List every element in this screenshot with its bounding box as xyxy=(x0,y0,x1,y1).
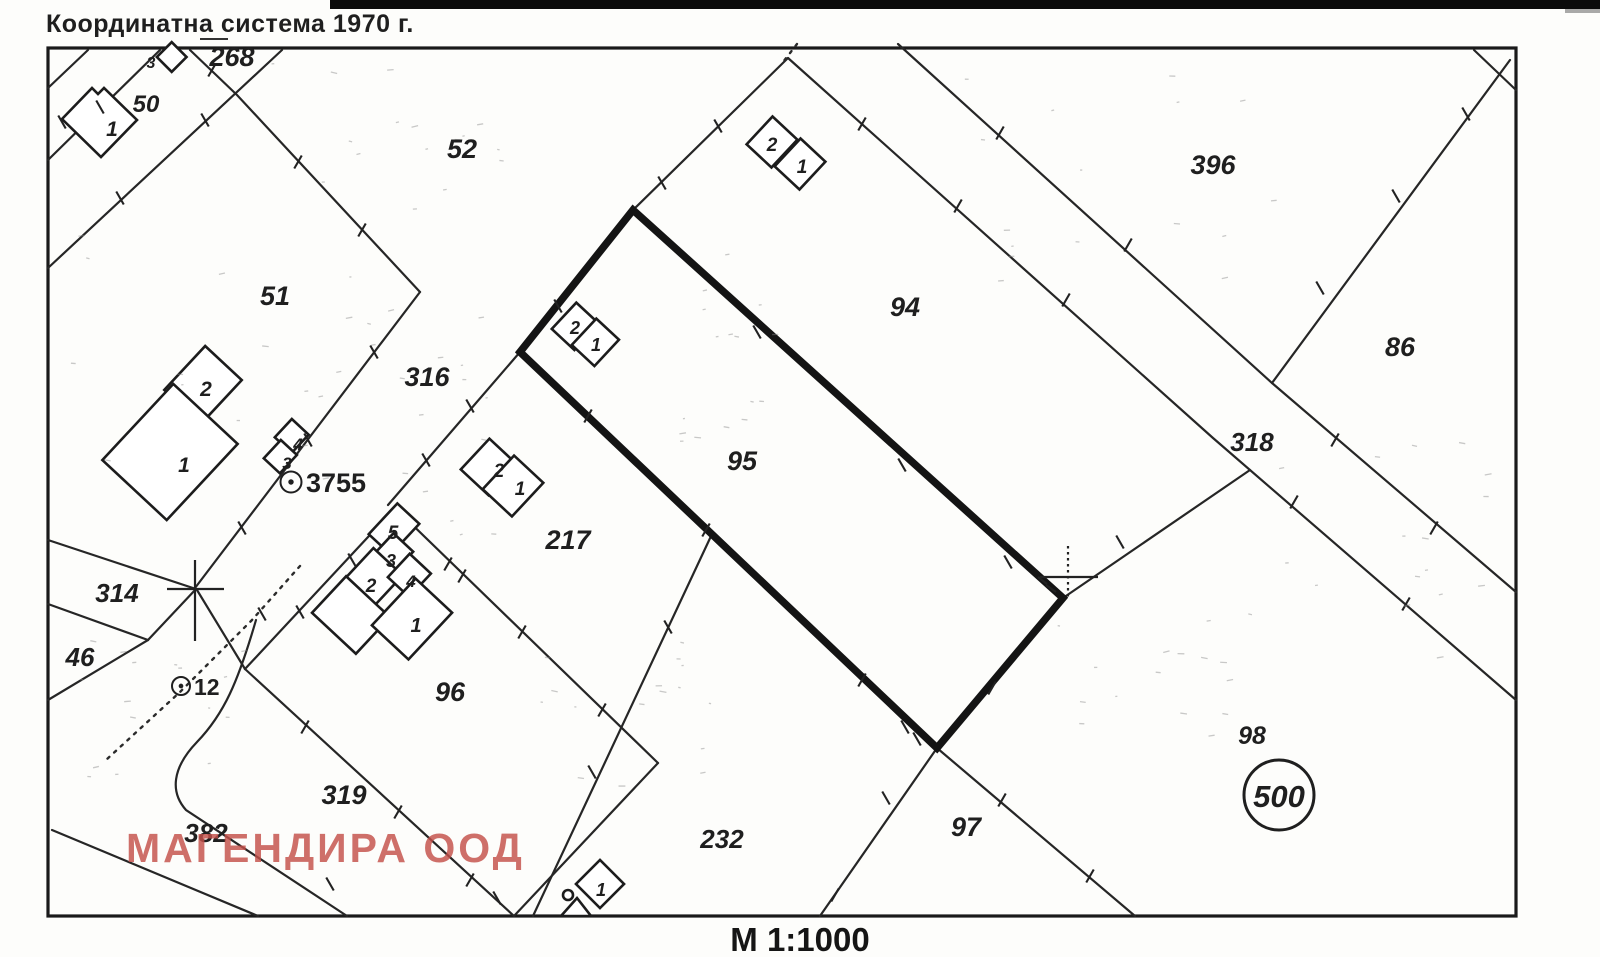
building-label: 1 xyxy=(797,157,808,178)
speckle xyxy=(1248,614,1252,615)
speckle xyxy=(425,149,428,150)
parcel-label: 95 xyxy=(727,446,758,476)
parcel-label: 396 xyxy=(1190,150,1236,180)
speckle xyxy=(1375,457,1380,458)
speckle xyxy=(1439,594,1443,595)
speckle xyxy=(660,691,667,692)
building-label: 1 xyxy=(106,118,118,141)
parcel-label: 268 xyxy=(208,42,254,72)
tick-mark xyxy=(1116,536,1124,549)
speckle xyxy=(700,772,705,773)
speckle xyxy=(1415,576,1420,577)
speckle xyxy=(742,419,748,420)
parcel-label: 316 xyxy=(404,362,450,392)
speckle xyxy=(1080,702,1086,703)
survey-point-label: 12 xyxy=(194,674,220,700)
speckle xyxy=(694,437,701,438)
survey-cross-east xyxy=(1038,546,1098,600)
parcel-label: 96 xyxy=(435,677,466,707)
speckle xyxy=(1437,657,1444,658)
building-label: 2 xyxy=(365,576,377,597)
speckle xyxy=(93,766,99,767)
speckle xyxy=(371,345,375,346)
speckle xyxy=(1177,102,1180,103)
speckle xyxy=(349,141,352,142)
speckle xyxy=(387,70,394,71)
tick-mark xyxy=(1316,282,1324,295)
parcel-label: 50 xyxy=(133,91,160,118)
speckle xyxy=(679,433,686,434)
speckle xyxy=(388,310,394,311)
speckle xyxy=(78,235,85,236)
speckle xyxy=(734,336,739,337)
speckle xyxy=(1222,277,1228,278)
speckle xyxy=(728,334,732,335)
tick-mark xyxy=(831,889,839,902)
speckle xyxy=(578,778,584,779)
speckle xyxy=(1156,672,1161,673)
area-badge-label: 500 xyxy=(1253,779,1305,814)
parcel-label: 86 xyxy=(1385,332,1416,362)
survey-point-dot xyxy=(179,684,184,689)
speckle xyxy=(1227,679,1233,680)
speckle xyxy=(545,657,550,658)
parcel-95-bold-outline xyxy=(520,210,1063,748)
speckle xyxy=(86,258,89,259)
building-label: 2 xyxy=(493,461,505,482)
speckle xyxy=(639,704,644,705)
speckle xyxy=(262,346,269,347)
parcel-label: 217 xyxy=(544,525,592,555)
speckle xyxy=(1478,585,1485,586)
speckle xyxy=(1459,443,1465,444)
map-canvas: Координатна система 1970 г. xyxy=(0,0,1600,957)
building-label: 3 xyxy=(147,55,156,72)
survey-point-dot xyxy=(288,479,293,484)
speckle xyxy=(725,254,729,255)
building-label: 3 xyxy=(282,454,292,473)
speckle xyxy=(367,323,371,324)
parcel-label: 97 xyxy=(951,812,983,842)
speckle xyxy=(356,153,360,154)
frame-corner-cut-tr xyxy=(1474,50,1516,90)
survey-point-label: 3755 xyxy=(306,468,366,498)
building-label: 3 xyxy=(386,551,396,571)
parcel-label: 98 xyxy=(1238,722,1266,750)
tick-mark xyxy=(588,766,596,779)
speckle xyxy=(1279,468,1284,469)
parcel-label: 94 xyxy=(890,292,920,322)
building-label: 2 xyxy=(569,318,580,338)
tick-mark xyxy=(326,878,334,891)
parcel-label: 232 xyxy=(699,824,744,854)
tick-mark xyxy=(898,459,906,472)
speckle xyxy=(130,717,136,718)
building-50 xyxy=(62,88,137,157)
parcel-label: 319 xyxy=(321,780,366,810)
speckle xyxy=(319,396,324,397)
scan-smudge xyxy=(1565,9,1600,13)
tick-mark xyxy=(1062,294,1070,307)
speckle xyxy=(680,642,684,643)
speckle xyxy=(479,317,484,318)
area-500-badge: 500 xyxy=(1244,760,1314,830)
frame-corner-cut-tl xyxy=(48,50,88,88)
parcel-label: 318 xyxy=(1230,427,1274,457)
speckle xyxy=(346,317,352,318)
tick-mark xyxy=(1004,556,1012,569)
speckle xyxy=(1240,100,1245,101)
parcel-number-labels: 2685052513163969486318952173144696319382… xyxy=(65,42,1416,854)
tick-mark xyxy=(882,792,890,805)
building-label: 1 xyxy=(591,335,601,355)
speckle xyxy=(224,677,227,678)
speckle xyxy=(1222,714,1228,715)
parcel-label: 46 xyxy=(65,642,95,672)
tick-mark xyxy=(258,608,266,621)
scale-label: М 1:1000 xyxy=(730,921,869,957)
speckle xyxy=(1174,223,1180,224)
speckle xyxy=(1485,474,1492,475)
parcel-label: 314 xyxy=(95,578,139,608)
speckle xyxy=(724,427,730,428)
tick-mark xyxy=(1124,239,1132,252)
speckle xyxy=(1271,200,1277,201)
speckle xyxy=(703,290,707,291)
speckle xyxy=(703,309,706,310)
speckle xyxy=(1201,657,1208,658)
speckle xyxy=(477,124,483,125)
building-label: 4 xyxy=(405,572,416,591)
speckle xyxy=(412,126,419,128)
survey-cross-west xyxy=(167,560,224,641)
speckle xyxy=(219,273,225,274)
speckle xyxy=(336,371,341,372)
speckle xyxy=(1222,235,1226,236)
scan-edge-band xyxy=(330,0,1600,9)
building-label: 1 xyxy=(410,615,421,637)
speckle xyxy=(499,160,503,161)
speckle xyxy=(481,439,486,440)
watermark-text: МАГЕНДИРА ООД xyxy=(126,825,525,871)
speckle xyxy=(331,72,337,74)
tick-mark xyxy=(1392,190,1400,203)
building-label: 1 xyxy=(178,454,190,477)
parcel-label: 52 xyxy=(447,134,477,164)
speckle xyxy=(1422,538,1429,539)
speckle xyxy=(1051,110,1054,111)
speckle xyxy=(438,357,443,358)
speckle xyxy=(460,534,463,535)
speckle xyxy=(678,687,680,688)
speckle xyxy=(1163,651,1169,653)
building-label: 5 xyxy=(388,523,399,544)
speckle xyxy=(396,122,399,123)
speckle xyxy=(419,415,424,416)
speckle xyxy=(423,491,428,492)
scanned-cadastral-map: Координатна система 1970 г. xyxy=(0,0,1600,957)
speckle xyxy=(1180,713,1187,714)
building-label: 2 xyxy=(199,378,212,401)
parcel-label: 51 xyxy=(260,281,290,311)
speckle xyxy=(1207,621,1211,622)
speckle xyxy=(1209,735,1215,736)
speckle xyxy=(443,189,447,190)
tick-mark xyxy=(858,118,866,131)
speckle xyxy=(1412,445,1417,446)
speckle xyxy=(551,690,557,691)
tick-mark xyxy=(1290,496,1298,509)
tick-mark xyxy=(1430,522,1438,535)
speckle xyxy=(750,401,753,402)
building-label: 4 xyxy=(292,435,303,454)
speckle xyxy=(124,701,131,702)
map-title: Координатна система 1970 г. xyxy=(46,10,414,38)
survey-point-markers: 375512 xyxy=(172,468,366,700)
speckle xyxy=(497,149,499,150)
speckle xyxy=(450,521,453,522)
building-label: 1 xyxy=(596,880,606,900)
building-label: 2 xyxy=(766,135,778,156)
building-label: 1 xyxy=(515,479,526,500)
